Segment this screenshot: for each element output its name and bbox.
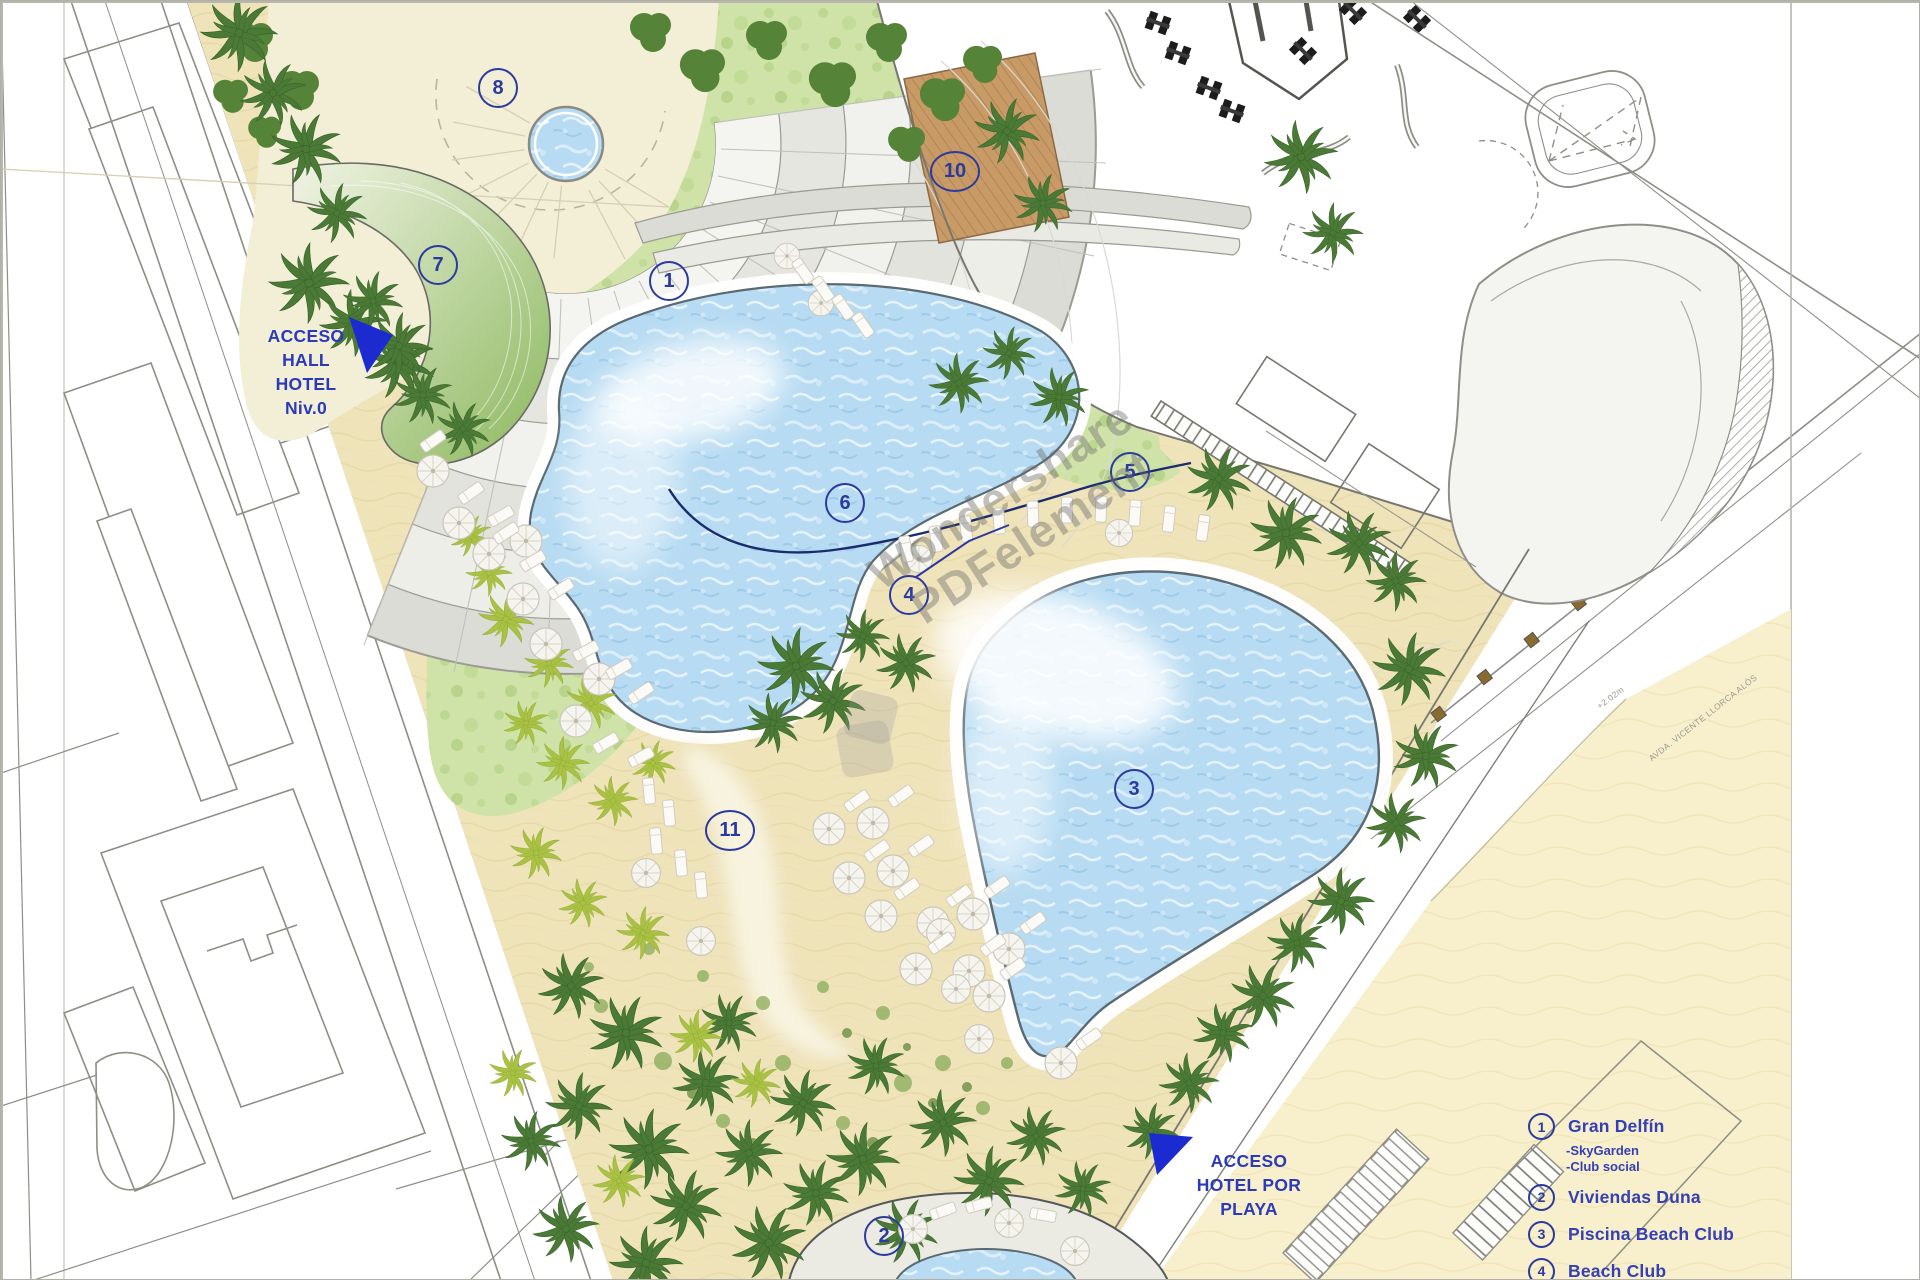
site-plan-page: 1 2 3 4 5 6 7 8 10 11 ACCESO HALL HOTEL … xyxy=(0,0,1920,1280)
legend-circle-2: 2 xyxy=(1528,1184,1555,1211)
plan-marker-1: 1 xyxy=(649,261,689,301)
legend-circle-3: 3 xyxy=(1528,1221,1555,1248)
plan-marker-4: 4 xyxy=(889,575,929,615)
legend-label-4: Beach Club xyxy=(1568,1261,1666,1280)
acceso-hall-line1: ACCESO xyxy=(251,324,361,348)
acceso-hall-annotation: ACCESO HALL HOTEL Niv.0 xyxy=(251,324,361,421)
plan-marker-2-label: 2 xyxy=(878,1225,889,1248)
legend-sub-club-social: -Club social xyxy=(1566,1159,1808,1175)
acceso-hall-line3: HOTEL xyxy=(251,372,361,396)
plan-marker-7: 7 xyxy=(418,245,458,285)
plan-marker-7-label: 7 xyxy=(432,254,443,277)
plan-marker-10: 10 xyxy=(930,151,980,192)
plan-marker-3-label: 3 xyxy=(1128,778,1139,801)
legend-item-beach-club: 4 Beach Club xyxy=(1528,1258,1808,1280)
legend-item-viviendas-duna: 2 Viviendas Duna xyxy=(1528,1184,1808,1211)
legend-label-2: Viviendas Duna xyxy=(1568,1187,1701,1208)
plan-marker-2: 2 xyxy=(864,1216,904,1256)
plan-marker-1-label: 1 xyxy=(663,270,674,293)
legend-label-3: Piscina Beach Club xyxy=(1568,1224,1734,1245)
plan-marker-4-label: 4 xyxy=(903,584,914,607)
plan-marker-11: 11 xyxy=(705,810,755,851)
plan-marker-6: 6 xyxy=(825,483,865,523)
legend-label-1: Gran Delfín xyxy=(1568,1116,1665,1137)
plan-marker-11-label: 11 xyxy=(719,819,740,842)
fountain-pool xyxy=(529,107,603,181)
plan-marker-5-label: 5 xyxy=(1124,461,1135,484)
legend-item-piscina-beach-club: 3 Piscina Beach Club xyxy=(1528,1221,1808,1248)
site-plan-drawing xyxy=(1,1,1920,1280)
acceso-playa-line3: PLAYA xyxy=(1179,1197,1319,1221)
acceso-hall-line4: Niv.0 xyxy=(251,396,361,420)
acceso-hall-line2: HALL xyxy=(251,348,361,372)
acceso-playa-line1: ACCESO xyxy=(1179,1149,1319,1173)
plan-marker-8-label: 8 xyxy=(492,77,503,100)
plan-marker-6-label: 6 xyxy=(839,492,850,515)
acceso-playa-annotation: ACCESO HOTEL POR PLAYA xyxy=(1179,1149,1319,1221)
legend-sub-skygarden: -SkyGarden xyxy=(1566,1143,1808,1159)
plan-marker-8: 8 xyxy=(478,68,518,108)
legend-circle-1: 1 xyxy=(1528,1113,1555,1140)
plan-marker-5: 5 xyxy=(1110,452,1150,492)
plan-marker-3: 3 xyxy=(1114,769,1154,809)
plan-marker-10-label: 10 xyxy=(944,160,966,183)
legend-circle-4: 4 xyxy=(1528,1258,1555,1280)
legend-item-gran-delfin: 1 Gran Delfín xyxy=(1528,1113,1808,1140)
acceso-playa-line2: HOTEL POR xyxy=(1179,1173,1319,1197)
legend-sub-items: -SkyGarden -Club social xyxy=(1566,1143,1808,1176)
plan-legend: 1 Gran Delfín -SkyGarden -Club social 2 … xyxy=(1528,1113,1808,1280)
